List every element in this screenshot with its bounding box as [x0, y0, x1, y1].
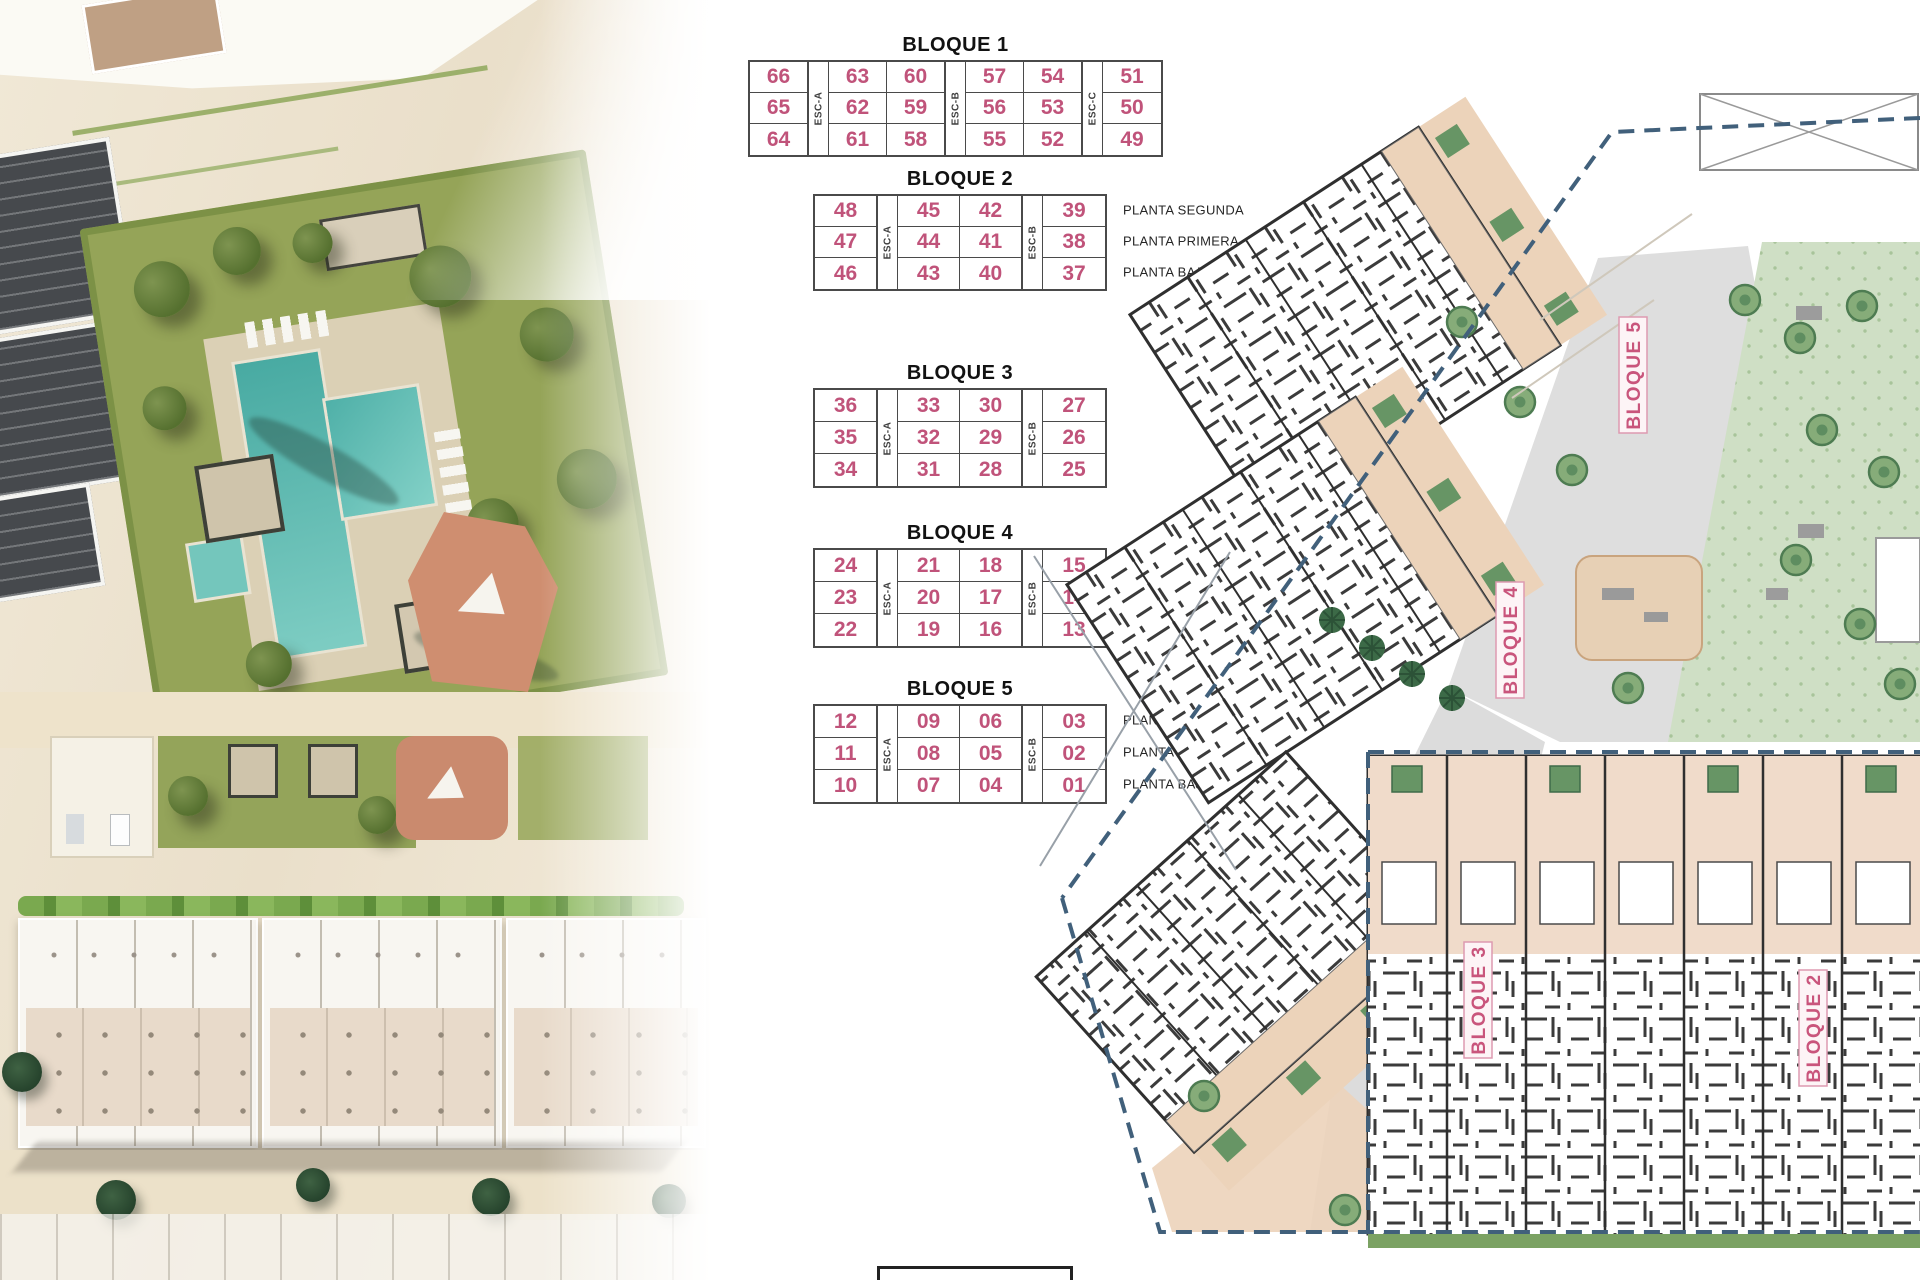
- unit-cell: 32: [898, 422, 960, 454]
- unit-cell: 08: [898, 738, 960, 770]
- palm-icon: [296, 1168, 330, 1202]
- unit-cell: 47: [815, 227, 877, 258]
- unit-cell: 19: [898, 614, 960, 646]
- unit-cell: 62: [829, 93, 887, 124]
- pergola: [228, 744, 278, 798]
- unit-cell: 28: [960, 454, 1022, 486]
- stair-column-esc-b: ESC-B: [945, 62, 966, 155]
- tree-icon: [139, 383, 189, 433]
- garden-strip: [158, 736, 416, 848]
- aerial-render: [0, 0, 768, 1280]
- unit-cell: 06: [960, 706, 1022, 738]
- unit-cell: 40: [960, 258, 1022, 289]
- stair-column-esc-a: ESC-A: [808, 62, 829, 155]
- svg-text:BLOQUE 4: BLOQUE 4: [1501, 585, 1522, 694]
- palm-icon: [472, 1178, 510, 1216]
- parking-lot: [50, 736, 154, 858]
- unit-cell: 16: [960, 614, 1022, 646]
- kite-shade: [427, 763, 469, 805]
- plan-label-bloque-2: BLOQUE 2: [1799, 970, 1827, 1086]
- stair-column-esc-a: ESC-A: [877, 196, 898, 289]
- unit-cell: 60: [887, 62, 945, 93]
- mini-playground: [396, 736, 508, 840]
- tree-icon: [209, 224, 264, 279]
- kite-shade: [458, 567, 514, 623]
- unit-cell: 43: [898, 258, 960, 289]
- unit-cell: 33: [898, 390, 960, 422]
- stair-column-esc-a: ESC-A: [877, 550, 898, 646]
- unit-cell: 48: [815, 196, 877, 227]
- tree-icon: [168, 776, 208, 816]
- unit-cell: 41: [960, 227, 1022, 258]
- plan-label-bloque-4: BLOQUE 4: [1496, 582, 1524, 698]
- unit-cell: 21: [898, 550, 960, 582]
- unit-cell: 07: [898, 770, 960, 802]
- unit-cell: 22: [815, 614, 877, 646]
- existing-building-x: [1700, 94, 1918, 170]
- terrace-furniture: [28, 934, 248, 980]
- unit-cell: 34: [815, 454, 877, 486]
- white-fade: [300, 0, 768, 300]
- site-plan: BLOQUE 5 BLOQUE 4 BLOQUE 3 BLOQUE 2: [1020, 80, 1920, 1280]
- unit-cell: 56: [966, 93, 1024, 124]
- unit-cell: 61: [829, 124, 887, 155]
- unit-cell: 29: [960, 422, 1022, 454]
- townhouse-cluster: [18, 918, 258, 1148]
- unit-cell: 42: [960, 196, 1022, 227]
- unit-cell: 04: [960, 770, 1022, 802]
- brochure-page: BLOQUE 166636057545165625956535064615855…: [0, 0, 1920, 1280]
- unit-cell: 45: [898, 196, 960, 227]
- unit-cell: 58: [887, 124, 945, 155]
- svg-text:BLOQUE 3: BLOQUE 3: [1469, 945, 1490, 1054]
- unit-cell: 11: [815, 738, 877, 770]
- unit-cell: 55: [966, 124, 1024, 155]
- terrace-band: [26, 1008, 250, 1126]
- partial-legend-box: [877, 1266, 1073, 1280]
- unit-cell: 24: [815, 550, 877, 582]
- kids-pool: [188, 538, 248, 599]
- unit-cell: 63: [829, 62, 887, 93]
- tree-icon: [130, 257, 194, 321]
- plan-label-bloque-5: BLOQUE 5: [1619, 317, 1647, 433]
- building-bloque-2: [1368, 756, 1920, 1248]
- unit-cell: 09: [898, 706, 960, 738]
- plan-label-bloque-3: BLOQUE 3: [1464, 942, 1492, 1058]
- car: [66, 814, 84, 844]
- unit-cell: 36: [815, 390, 877, 422]
- car: [110, 814, 130, 846]
- unit-cell: 20: [898, 582, 960, 614]
- terrace-band: [270, 1008, 494, 1126]
- unit-cell: 59: [887, 93, 945, 124]
- svg-text:BLOQUE 2: BLOQUE 2: [1804, 973, 1825, 1082]
- svg-text:BLOQUE 5: BLOQUE 5: [1624, 320, 1645, 429]
- townhouse-cluster: [262, 918, 502, 1148]
- unit-cell: 12: [815, 706, 877, 738]
- unit-cell: 17: [960, 582, 1022, 614]
- unit-cell: 30: [960, 390, 1022, 422]
- unit-cell: 46: [815, 258, 877, 289]
- building-roof: [0, 483, 105, 606]
- unit-cell: 44: [898, 227, 960, 258]
- block-title: BLOQUE 1: [748, 34, 1163, 56]
- unit-cell: 10: [815, 770, 877, 802]
- pergola: [194, 454, 285, 544]
- unit-cell: 31: [898, 454, 960, 486]
- terrace-furniture: [272, 934, 492, 980]
- unit-cell: 23: [815, 582, 877, 614]
- unit-cell: 57: [966, 62, 1024, 93]
- unit-cell: 18: [960, 550, 1022, 582]
- stair-column-esc-a: ESC-A: [877, 706, 898, 802]
- tree-icon: [358, 796, 396, 834]
- unit-cell: 05: [960, 738, 1022, 770]
- pergola: [308, 744, 358, 798]
- stair-column-esc-a: ESC-A: [877, 390, 898, 486]
- palm-icon: [2, 1052, 42, 1092]
- unit-cell: 35: [815, 422, 877, 454]
